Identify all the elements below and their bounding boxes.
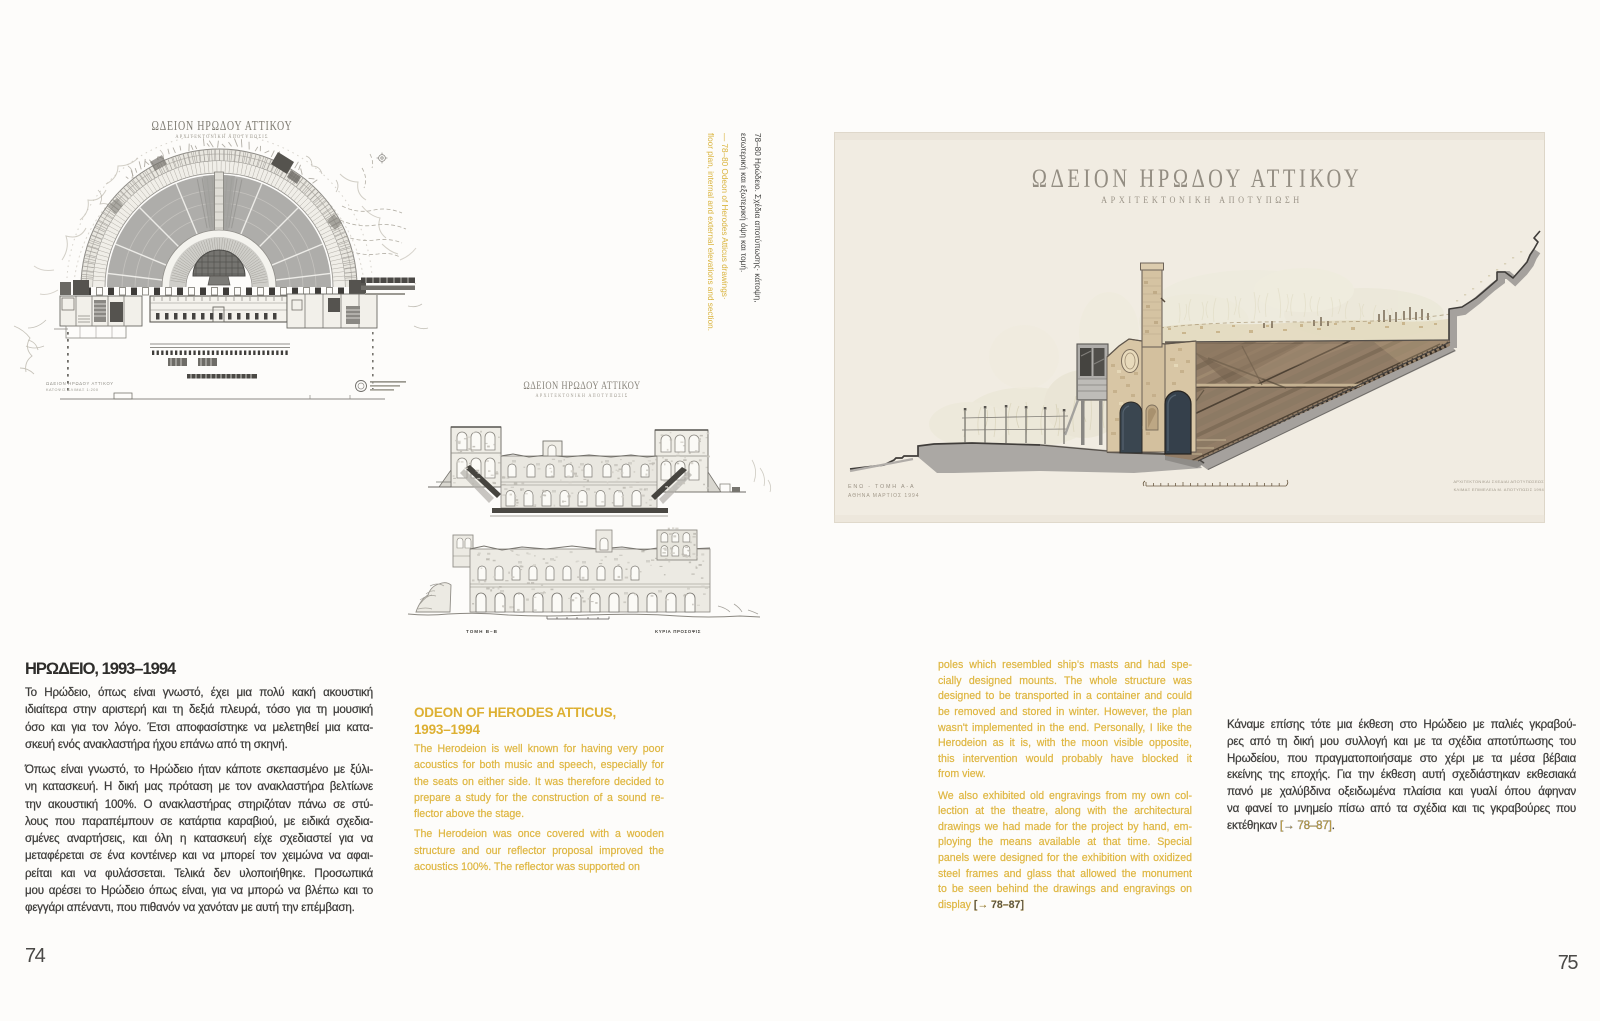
svg-text:ΑΡΧΙΤΕΚΤΟΝΙΚΗ ΑΠΟΤΥΠΩΣΙΣ: ΑΡΧΙΤΕΚΤΟΝΙΚΗ ΑΠΟΤΥΠΩΣΙΣ [175, 135, 268, 141]
svg-text:ΑΡΧΙΤΕΚΤΟΝΙΚΗ ΑΠΟΤΥΠΩΣΙΣ: ΑΡΧΙΤΕΚΤΟΝΙΚΗ ΑΠΟΤΥΠΩΣΙΣ [536, 394, 629, 400]
svg-text:ΕΝΩ - ΤΟΜΗ Α-Α: ΕΝΩ - ΤΟΜΗ Α-Α [848, 484, 915, 490]
svg-text:ΑΡΧΙΤΕΚΤΟΝΙΚΑΙ ΣΧΕΔΙΑΙ ΑΠΟΤΥΠΩ: ΑΡΧΙΤΕΚΤΟΝΙΚΑΙ ΣΧΕΔΙΑΙ ΑΠΟΤΥΠΩΣΕΩΣ [1453, 479, 1544, 484]
svg-text:ΚΛΙΜΑΞ ΕΠΙΜΕΛΕΙΑ Μ. ΑΠΟΤΥΠΩΣΙΣ: ΚΛΙΜΑΞ ΕΠΙΜΕΛΕΙΑ Μ. ΑΠΟΤΥΠΩΣΙΣ 1994 [1454, 487, 1545, 492]
svg-text:ΤΟΜΗ Β–Β: ΤΟΜΗ Β–Β [466, 629, 498, 634]
svg-text:ΑΘΗΝΑ ΜΑΡΤΙΟΣ 1994: ΑΘΗΝΑ ΜΑΡΤΙΟΣ 1994 [848, 493, 920, 499]
svg-text:ΑΡΧΙΤΕΚΤΟΝΙΚΗ ΑΠΟΤΥΠΩΣΗ: ΑΡΧΙΤΕΚΤΟΝΙΚΗ ΑΠΟΤΥΠΩΣΗ [1101, 194, 1303, 205]
svg-text:ΩΔΕΙΟΝ ΗΡΩΔΟΥ ΑΤΤΙΚΟΥ: ΩΔΕΙΟΝ ΗΡΩΔΟΥ ΑΤΤΙΚΟΥ [46, 381, 114, 386]
svg-text:ΚΥΡΙΑ ΠΡΟΣΟΨΙΣ: ΚΥΡΙΑ ΠΡΟΣΟΨΙΣ [655, 629, 701, 634]
svg-text:ΩΔΕΙΟΝ ΗΡΩΔΟΥ ΑΤΤΙΚΟΥ: ΩΔΕΙΟΝ ΗΡΩΔΟΥ ΑΤΤΙΚΟΥ [1032, 165, 1362, 194]
svg-text:ΩΔΕΙΟΝ ΗΡΩΔΟΥ ΑΤΤΙΚΟΥ: ΩΔΕΙΟΝ ΗΡΩΔΟΥ ΑΤΤΙΚΟΥ [523, 380, 640, 393]
svg-text:ΚΑΤΟΨΙΣ ΚΛΙΜΑΞ 1:200: ΚΑΤΟΨΙΣ ΚΛΙΜΑΞ 1:200 [46, 388, 98, 392]
svg-text:ΩΔΕΙΟΝ ΗΡΩΔΟΥ ΑΤΤΙΚΟΥ: ΩΔΕΙΟΝ ΗΡΩΔΟΥ ΑΤΤΙΚΟΥ [152, 117, 293, 133]
